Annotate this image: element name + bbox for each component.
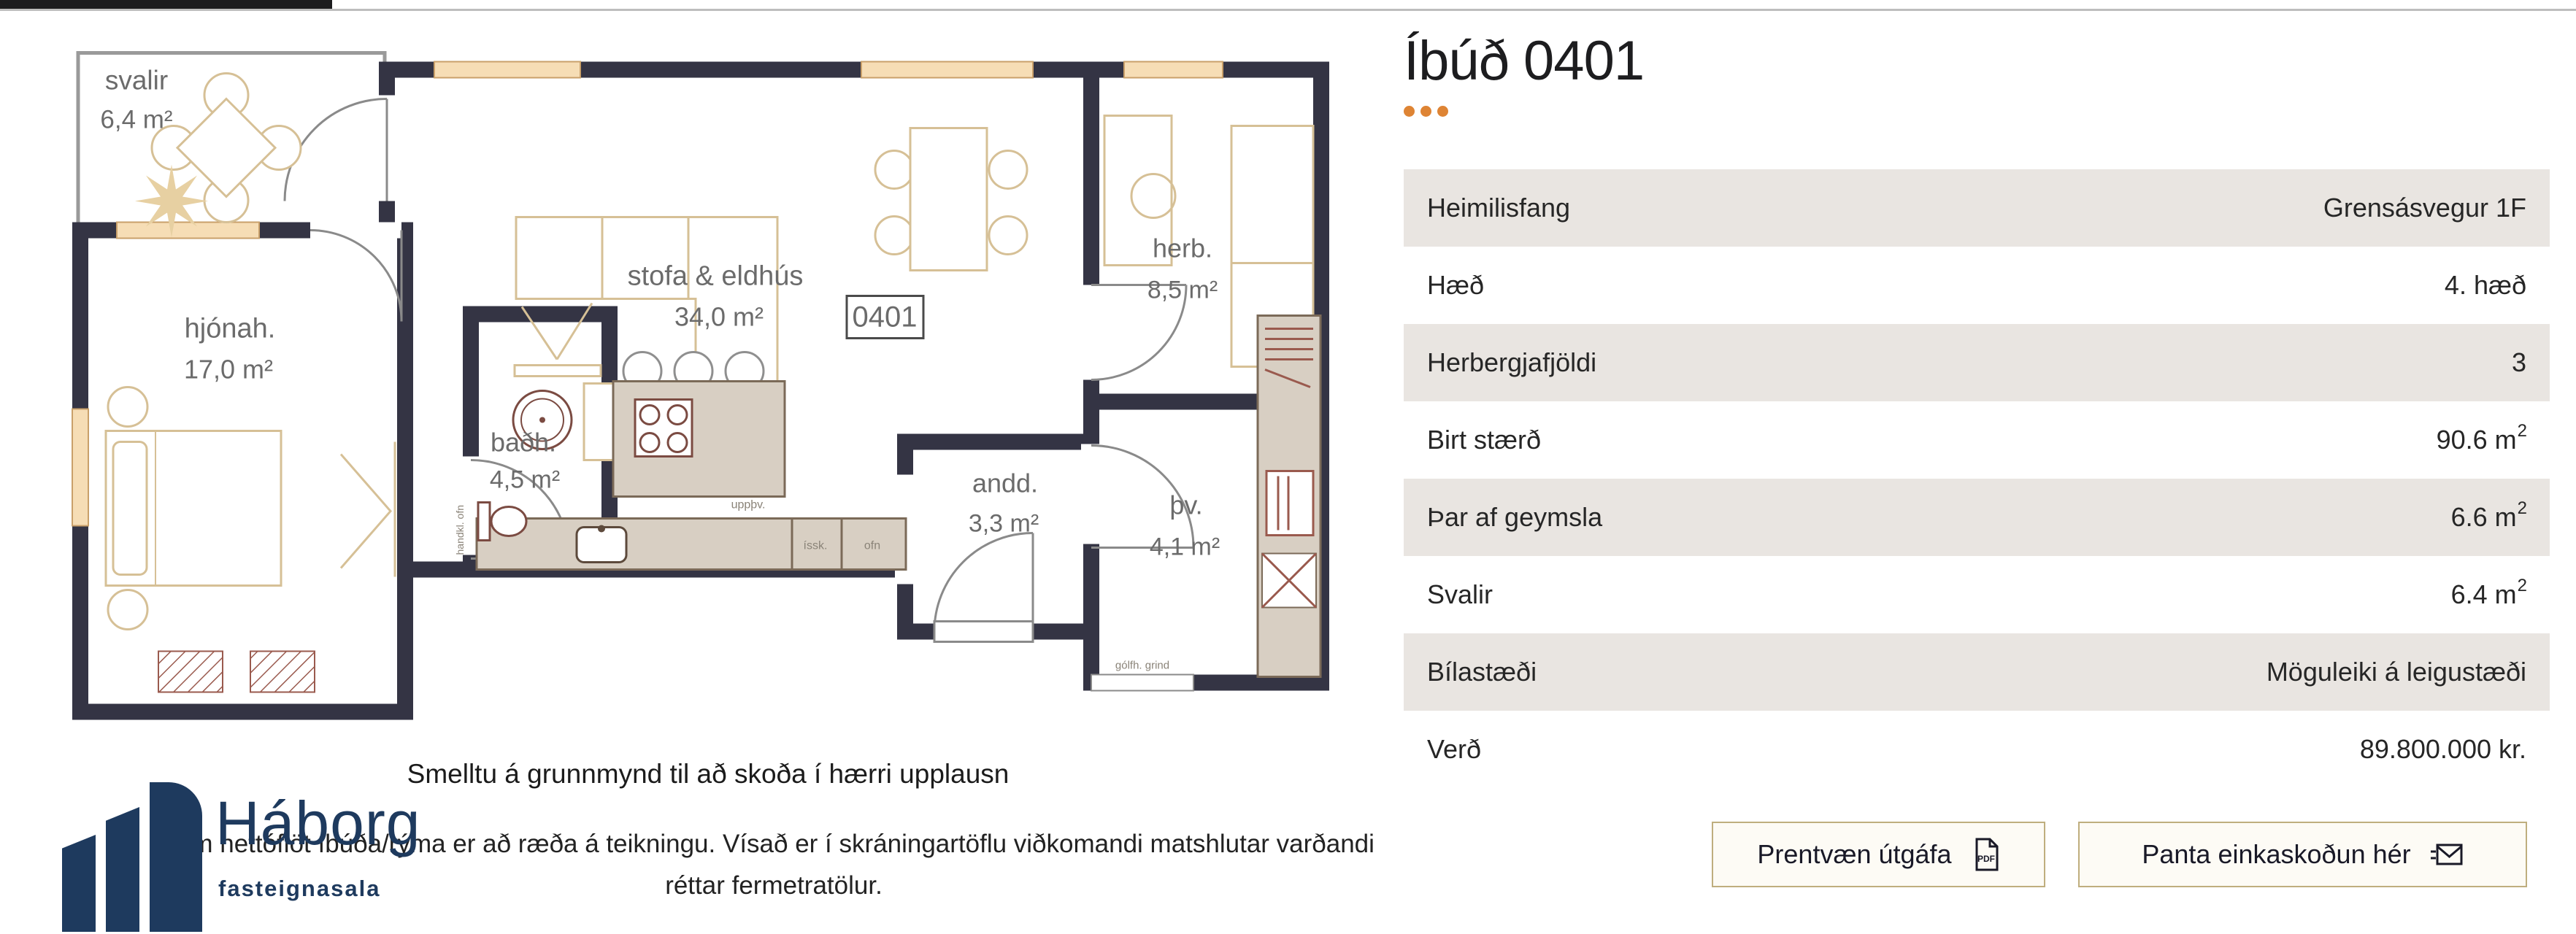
row-value: Grensásvegur 1F xyxy=(2323,193,2526,223)
row-value: 89.800.000 kr. xyxy=(2360,734,2526,765)
row-value: Möguleiki á leigustæði xyxy=(2267,657,2526,687)
details-panel: Íbúð 0401 xyxy=(1404,29,2550,119)
book-button-label: Panta einkaskoðun hér xyxy=(2142,839,2410,870)
page: 0401 svalir 6,4 m² hjónah. 17,0 m² stofa… xyxy=(0,0,2576,934)
envelope-send-icon xyxy=(2430,840,2464,869)
top-divider-line xyxy=(0,9,2576,11)
table-row: Þar af geymsla 6.6 m2 xyxy=(1404,479,2550,556)
row-label: Birt stærð xyxy=(1427,425,1541,455)
dishwasher-label: uppþv. xyxy=(731,499,766,512)
table-row: Verð 89.800.000 kr. xyxy=(1404,711,2550,788)
property-info-table: Heimilisfang Grensásvegur 1F Hæð 4. hæð … xyxy=(1404,169,2550,788)
room-size: 3,3 m² xyxy=(969,510,1039,538)
table-row: Heimilisfang Grensásvegur 1F xyxy=(1404,169,2550,247)
floor-grid-label: gólfh. grind xyxy=(1115,660,1169,672)
title-dots xyxy=(1404,106,2550,119)
room-size: 17,0 m² xyxy=(184,355,273,385)
room-size: 4,1 m² xyxy=(1150,533,1220,561)
book-viewing-button[interactable]: Panta einkaskoðun hér xyxy=(2078,822,2527,887)
print-version-button[interactable]: Prentvæn útgáfa PDF xyxy=(1712,822,2045,887)
room-name: baðh. xyxy=(491,428,556,458)
room-name: þv. xyxy=(1169,490,1202,520)
unit-badge: 0401 xyxy=(847,296,923,339)
row-label: Svalir xyxy=(1427,579,1493,610)
row-value: 6.6 m2 xyxy=(2451,502,2526,533)
room-name: andd. xyxy=(972,468,1038,498)
row-value: 4. hæð xyxy=(2445,270,2526,301)
row-value: 3 xyxy=(2512,347,2526,378)
print-button-label: Prentvæn útgáfa xyxy=(1757,839,1951,870)
row-value: 6.4 m2 xyxy=(2451,579,2526,610)
dot-icon xyxy=(1420,106,1431,117)
row-value: 90.6 m2 xyxy=(2437,425,2526,455)
row-label: Þar af geymsla xyxy=(1427,502,1602,533)
unit-badge-text: 0401 xyxy=(853,301,918,333)
pdf-icon: PDF xyxy=(1971,838,2000,871)
room-name: stofa & eldhús xyxy=(628,261,804,292)
table-row: Hæð 4. hæð xyxy=(1404,247,2550,324)
haborg-logo-icon xyxy=(62,782,208,932)
row-label: Verð xyxy=(1427,734,1481,765)
page-title: Íbúð 0401 xyxy=(1404,29,2550,93)
dot-icon xyxy=(1404,106,1415,117)
laundry-fixtures xyxy=(1258,316,1320,677)
room-size: 6,4 m² xyxy=(100,106,172,134)
plant-icon xyxy=(135,165,208,238)
room-size: 34,0 m² xyxy=(674,302,764,332)
room-name: svalir xyxy=(105,66,168,96)
table-row: Herbergjafjöldi 3 xyxy=(1404,324,2550,401)
room-name: hjónah. xyxy=(185,314,276,344)
row-label: Hæð xyxy=(1427,270,1484,301)
svg-text:PDF: PDF xyxy=(1977,854,1995,864)
table-row: Bílastæði Möguleiki á leigustæði xyxy=(1404,633,2550,711)
fridge-label: íssk. xyxy=(804,540,828,552)
table-row: Birt stærð 90.6 m2 xyxy=(1404,401,2550,479)
top-progress-bar xyxy=(0,0,332,9)
haborg-logo[interactable]: Háborg fasteignasala xyxy=(62,782,471,932)
row-label: Herbergjafjöldi xyxy=(1427,347,1596,378)
oven-label: ofn xyxy=(864,540,880,552)
action-buttons: Prentvæn útgáfa PDF Panta einkaskoðun hé… xyxy=(1712,822,2550,887)
logo-tagline: fasteignasala xyxy=(218,876,380,902)
table-row: Svalir 6.4 m2 xyxy=(1404,556,2550,633)
dot-icon xyxy=(1437,106,1448,117)
row-label: Bílastæði xyxy=(1427,657,1537,687)
logo-name: Háborg xyxy=(215,788,421,859)
room-size: 4,5 m² xyxy=(490,466,560,494)
floorplan-image[interactable]: 0401 svalir 6,4 m² hjónah. 17,0 m² stofa… xyxy=(69,42,1339,721)
towel-radiator-label: handkl. ofn xyxy=(454,505,466,555)
room-size: 8,5 m² xyxy=(1147,277,1218,304)
row-label: Heimilisfang xyxy=(1427,193,1570,223)
room-name: herb. xyxy=(1153,233,1212,263)
